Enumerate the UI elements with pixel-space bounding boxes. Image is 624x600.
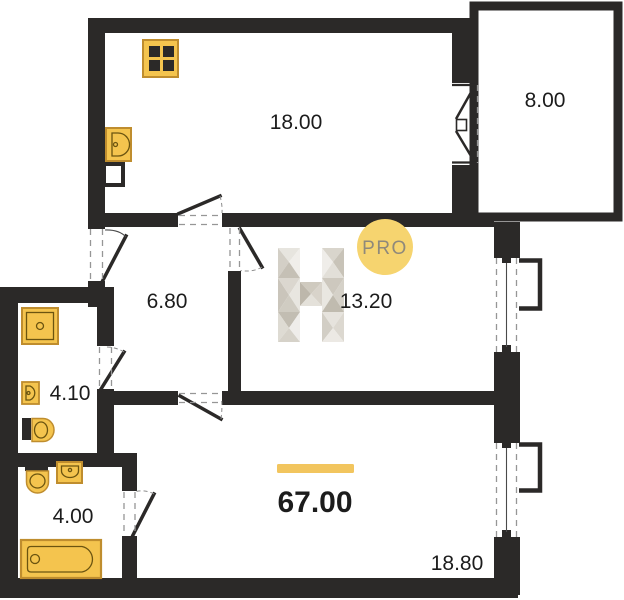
door-swing-icon-room13 bbox=[240, 229, 262, 267]
stove-burner bbox=[149, 46, 160, 57]
wall-right-a bbox=[494, 222, 520, 258]
bathroom-sink-icon-2 bbox=[57, 462, 82, 483]
wall-right-c bbox=[494, 537, 520, 595]
wall-bath400-right-a bbox=[122, 453, 137, 491]
room-label-hallway: 6.80 bbox=[147, 290, 188, 313]
toilet-tank bbox=[22, 418, 31, 440]
wall-right-b bbox=[494, 352, 520, 443]
wall-bottom bbox=[0, 578, 518, 598]
room-label-bathroom-lower: 4.00 bbox=[53, 505, 94, 528]
floor-plan-page: PRO 18.00 8.00 6.80 13.20 4.10 4.00 18.8… bbox=[0, 0, 624, 600]
room-label-bathroom-upper: 4.10 bbox=[50, 382, 91, 405]
wall-mid-horiz-left bbox=[97, 391, 178, 405]
window-icon-1 bbox=[497, 258, 517, 352]
bathtub-icon bbox=[21, 540, 101, 578]
door-swing-icon-entrance bbox=[103, 236, 127, 281]
door-swing-icon-bath410 bbox=[101, 352, 124, 389]
bath400-door-opening bbox=[124, 492, 135, 535]
wall-hall-top-right bbox=[222, 213, 494, 227]
toilet-icon-2 bbox=[25, 462, 49, 493]
floor-plan: PRO 18.00 8.00 6.80 13.20 4.10 4.00 18.8… bbox=[0, 0, 624, 600]
wall-mid-horiz-right bbox=[222, 391, 494, 405]
room13-door-opening bbox=[230, 228, 240, 270]
washing-machine-icon bbox=[22, 308, 58, 344]
door-swing-icon-bath400 bbox=[133, 494, 154, 535]
wall-bath410-right-a bbox=[97, 303, 114, 346]
room13-door-arc bbox=[241, 267, 263, 271]
wall-top bbox=[88, 18, 478, 33]
toilet-icon bbox=[22, 418, 54, 442]
h-logo-letter bbox=[278, 248, 344, 342]
bath400-door-arc bbox=[136, 491, 154, 494]
vent-duct-icon bbox=[104, 164, 123, 185]
accordion-handle bbox=[457, 120, 467, 131]
toilet-tank bbox=[25, 462, 48, 471]
wall-left-lower bbox=[0, 287, 18, 598]
stove-burner bbox=[163, 60, 174, 71]
entrance-opening bbox=[91, 229, 103, 281]
window-stop bbox=[502, 256, 511, 263]
window-stop bbox=[502, 441, 511, 448]
wall-hall-right bbox=[228, 271, 241, 405]
wall-bath400-right-b bbox=[122, 536, 137, 598]
room-label-bedroom: 18.80 bbox=[431, 552, 484, 575]
room-label-balcony: 8.00 bbox=[525, 89, 566, 112]
total-area-label: 67.00 bbox=[277, 486, 352, 519]
stove-body bbox=[143, 40, 178, 77]
kitchen-door-arc bbox=[220, 196, 222, 213]
door-swing-icon-kitchen bbox=[179, 196, 220, 214]
h-logo-watermark: PRO bbox=[278, 219, 413, 342]
window-balconette-2 bbox=[519, 445, 540, 491]
total-area-accent-bar bbox=[277, 464, 354, 473]
door-swing-icon-bedroom bbox=[180, 396, 221, 419]
stove-icon bbox=[143, 40, 178, 77]
kitchen-sink-icon bbox=[106, 128, 131, 161]
stove-burner bbox=[149, 60, 160, 71]
window-icon-2 bbox=[497, 443, 517, 537]
washer-body bbox=[22, 308, 58, 344]
kitchen-door-opening bbox=[179, 216, 221, 225]
bathroom-sink-icon bbox=[22, 382, 39, 404]
entrance-arc bbox=[105, 230, 126, 237]
bedroom-door-arc bbox=[221, 399, 222, 419]
bath410-door-arc bbox=[104, 347, 124, 352]
room-label-middle-room: 13.20 bbox=[340, 290, 393, 313]
wall-left-upper bbox=[88, 18, 105, 229]
pro-badge-text: PRO bbox=[362, 238, 408, 259]
room-label-kitchen: 18.00 bbox=[270, 111, 323, 134]
window-balconette-1 bbox=[519, 261, 540, 309]
wall-outlines bbox=[101, 6, 618, 535]
stove-burner bbox=[163, 46, 174, 57]
wall-hall-top-left bbox=[105, 213, 178, 227]
